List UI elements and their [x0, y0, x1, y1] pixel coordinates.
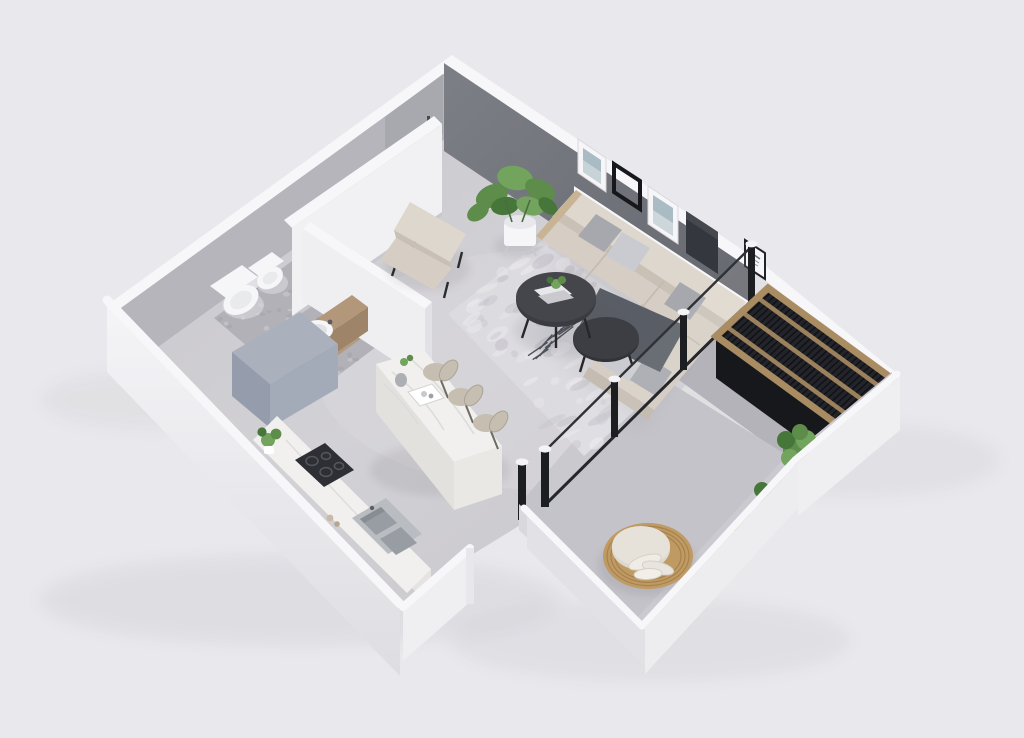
pebble — [266, 310, 271, 313]
pebble — [347, 352, 352, 357]
pebble — [217, 317, 222, 321]
pebble — [338, 367, 344, 370]
post-cap — [516, 458, 529, 465]
sink-faucet-icon — [370, 506, 374, 510]
pebble — [260, 313, 266, 316]
post-cap — [678, 309, 690, 316]
pebble — [288, 309, 293, 312]
pebble — [224, 321, 228, 325]
floor-plan-render — [0, 0, 1024, 738]
faucet-icon — [328, 320, 333, 325]
pebble — [227, 325, 233, 328]
pebble — [352, 358, 359, 361]
jar — [327, 515, 334, 522]
vase — [395, 373, 407, 387]
post-cap — [609, 376, 621, 383]
post-cap — [539, 445, 552, 452]
isometric-scene — [0, 0, 1024, 738]
pebble — [263, 326, 269, 331]
door-jamb — [466, 548, 474, 604]
post-cap — [746, 241, 758, 248]
pebble — [277, 308, 282, 312]
